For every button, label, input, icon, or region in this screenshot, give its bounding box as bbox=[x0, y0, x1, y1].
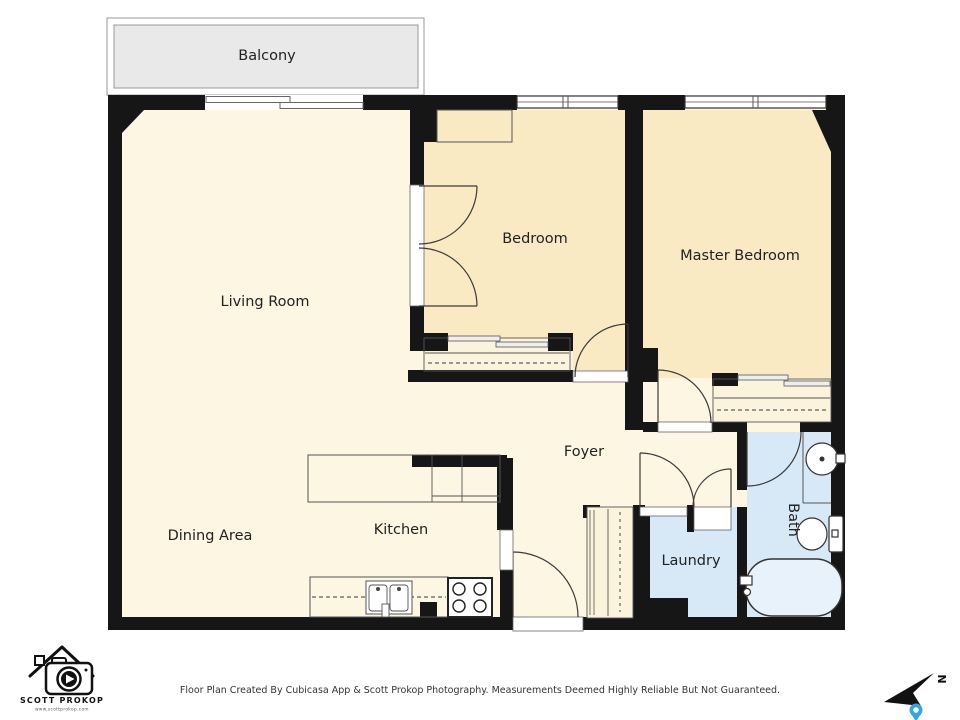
living-room-label: Living Room bbox=[220, 294, 309, 310]
footer-disclaimer: Floor Plan Created By Cubicasa App & Sco… bbox=[180, 685, 780, 696]
room-floors bbox=[108, 95, 845, 630]
bath-label: Bath bbox=[785, 503, 801, 537]
compass: N bbox=[884, 673, 948, 720]
sliding-closet-door bbox=[784, 381, 830, 386]
dining-area-label: Dining Area bbox=[168, 528, 253, 544]
stove bbox=[448, 578, 492, 617]
scott-prokop-logo: SCOTT PROKOP www.scottprokop.com bbox=[20, 647, 104, 712]
north-arrow-icon bbox=[884, 673, 934, 706]
kitchen-sink bbox=[366, 581, 412, 617]
logo-flash-dot-icon bbox=[85, 669, 88, 672]
sliding-door-panel bbox=[280, 103, 363, 109]
master-bedroom-window bbox=[685, 96, 826, 108]
toilet bbox=[797, 516, 843, 552]
location-pin-icon bbox=[910, 704, 923, 720]
sliding-closet-door bbox=[738, 375, 788, 380]
bedroom-window bbox=[517, 96, 618, 108]
balcony-area: Balcony bbox=[107, 18, 424, 95]
floor-plan-svg: Balcony bbox=[0, 0, 960, 720]
logo-chimney-icon bbox=[35, 656, 44, 665]
master-bedroom-floor bbox=[643, 110, 831, 378]
bathtub bbox=[740, 559, 842, 616]
sliding-closet-door bbox=[496, 342, 548, 347]
north-label: N bbox=[935, 674, 948, 683]
laundry-label: Laundry bbox=[661, 553, 721, 569]
sliding-closet-door bbox=[448, 336, 500, 341]
foyer-label: Foyer bbox=[564, 444, 604, 460]
kitchen-pass-opening bbox=[500, 530, 513, 570]
floor-plan-page: Balcony bbox=[0, 0, 960, 720]
sliding-door-panel bbox=[206, 97, 290, 103]
master-bedroom-label: Master Bedroom bbox=[680, 248, 800, 264]
balcony-label: Balcony bbox=[238, 48, 296, 64]
logo-name-text: SCOTT PROKOP bbox=[20, 696, 104, 705]
logo-url-text: www.scottprokop.com bbox=[35, 707, 89, 712]
foyer-closet bbox=[587, 507, 633, 618]
kitchen-label: Kitchen bbox=[374, 522, 429, 538]
bedroom-label: Bedroom bbox=[502, 231, 568, 247]
